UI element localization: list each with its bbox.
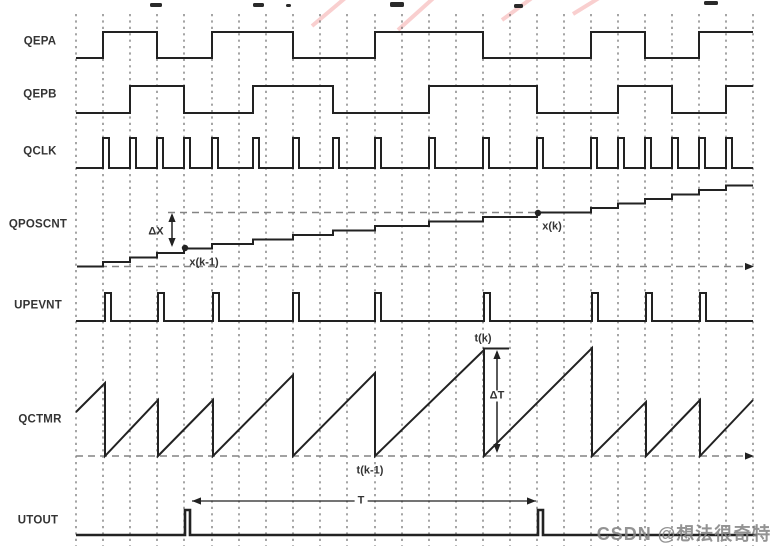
timing-diagram-canvas xyxy=(0,0,779,557)
signal-label-qctmr: QCTMR xyxy=(18,414,61,426)
signal-label-qclk: QCLK xyxy=(23,146,56,158)
signal-label-utout: UTOUT xyxy=(18,515,58,527)
t-k-label: t(k) xyxy=(474,334,491,345)
signal-label-upevnt: UPEVNT xyxy=(14,300,62,312)
signal-label-qepb: QEPB xyxy=(23,89,56,101)
delta-t-label: ΔT xyxy=(487,391,508,402)
timing-diagram: QEPA QEPB QCLK QPOSCNT UPEVNT QCTMR UTOU… xyxy=(0,0,779,557)
signal-label-qposcnt: QPOSCNT xyxy=(9,219,67,231)
period-t-label: T xyxy=(355,496,368,507)
signal-label-qepa: QEPA xyxy=(24,36,57,48)
x-k-label: x(k) xyxy=(542,222,562,233)
x-k-minus1-label: x(k-1) xyxy=(189,258,218,269)
delta-x-label: ΔX xyxy=(148,227,163,238)
t-k-minus1-label: t(k-1) xyxy=(357,466,384,477)
csdn-watermark: CSDN @想法很奇特 xyxy=(597,520,772,546)
